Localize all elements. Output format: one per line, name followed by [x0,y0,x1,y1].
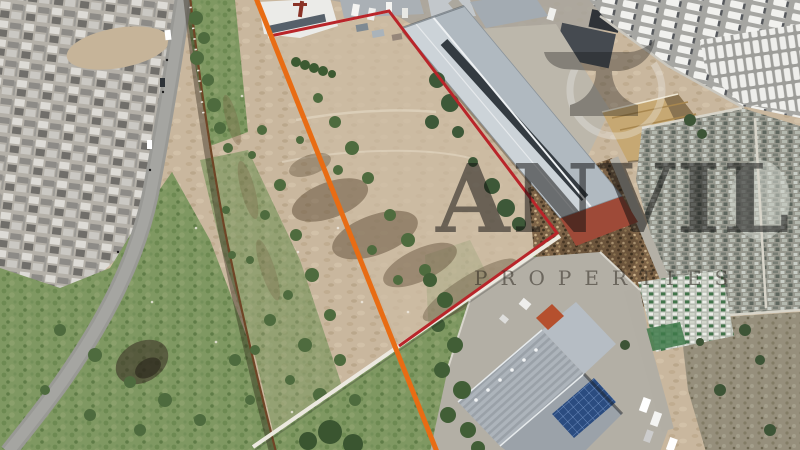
aerial-photo: ANVIL PROPERTIES [0,0,800,450]
aerial-scene [0,0,800,450]
